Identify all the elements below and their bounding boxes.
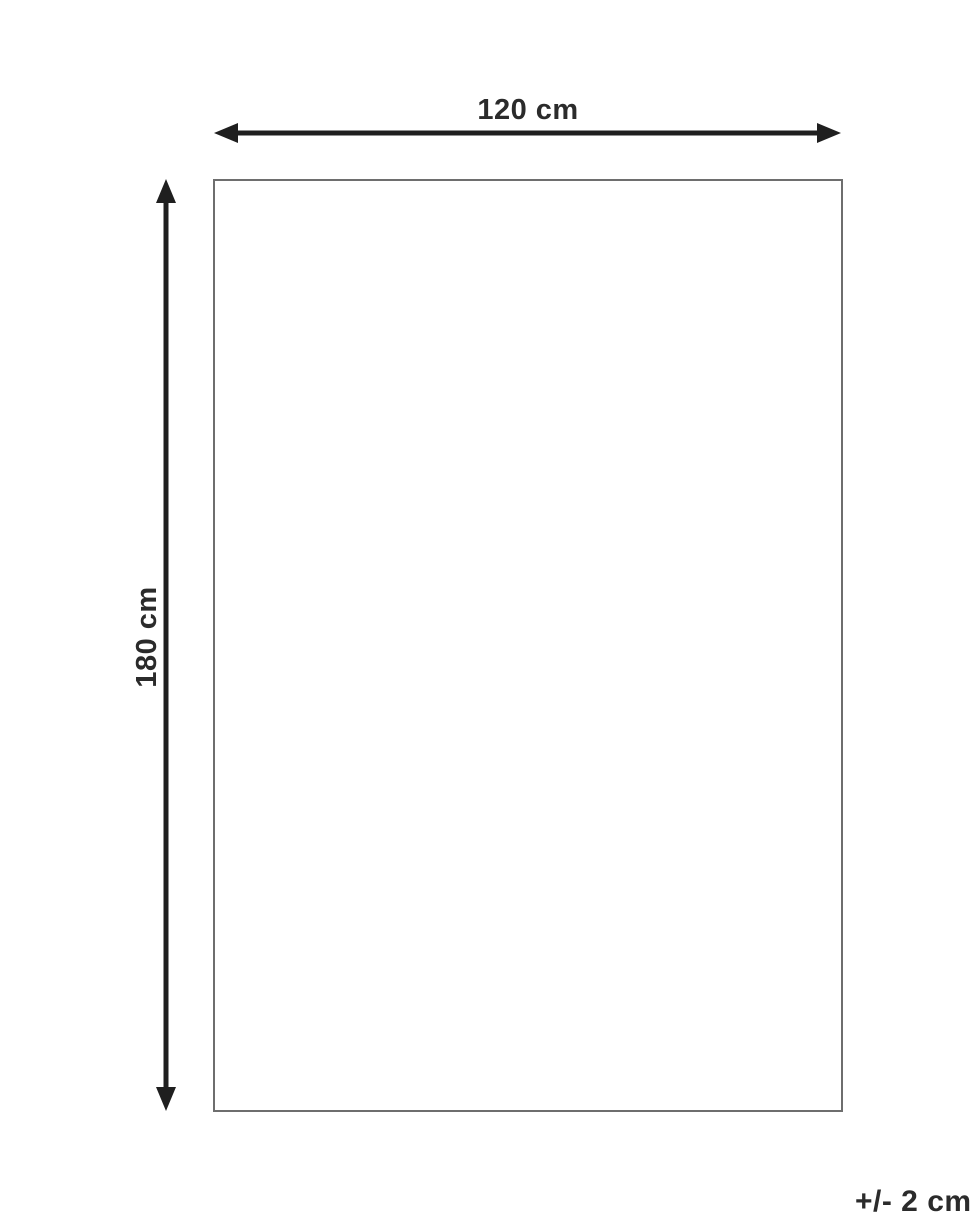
width-dimension-arrow — [214, 123, 841, 143]
width-arrow-left-head-icon — [214, 123, 238, 143]
height-dimension-label: 180 cm — [131, 582, 163, 692]
dimension-diagram: 120 cm 180 cm +/- 2 cm — [0, 0, 970, 1213]
width-dimension-label: 120 cm — [213, 94, 843, 126]
height-arrow-bottom-head-icon — [156, 1087, 176, 1111]
tolerance-label: +/- 2 cm — [855, 1185, 970, 1219]
product-outline-rect — [214, 180, 842, 1111]
height-arrow-top-head-icon — [156, 179, 176, 203]
width-arrow-right-head-icon — [817, 123, 841, 143]
